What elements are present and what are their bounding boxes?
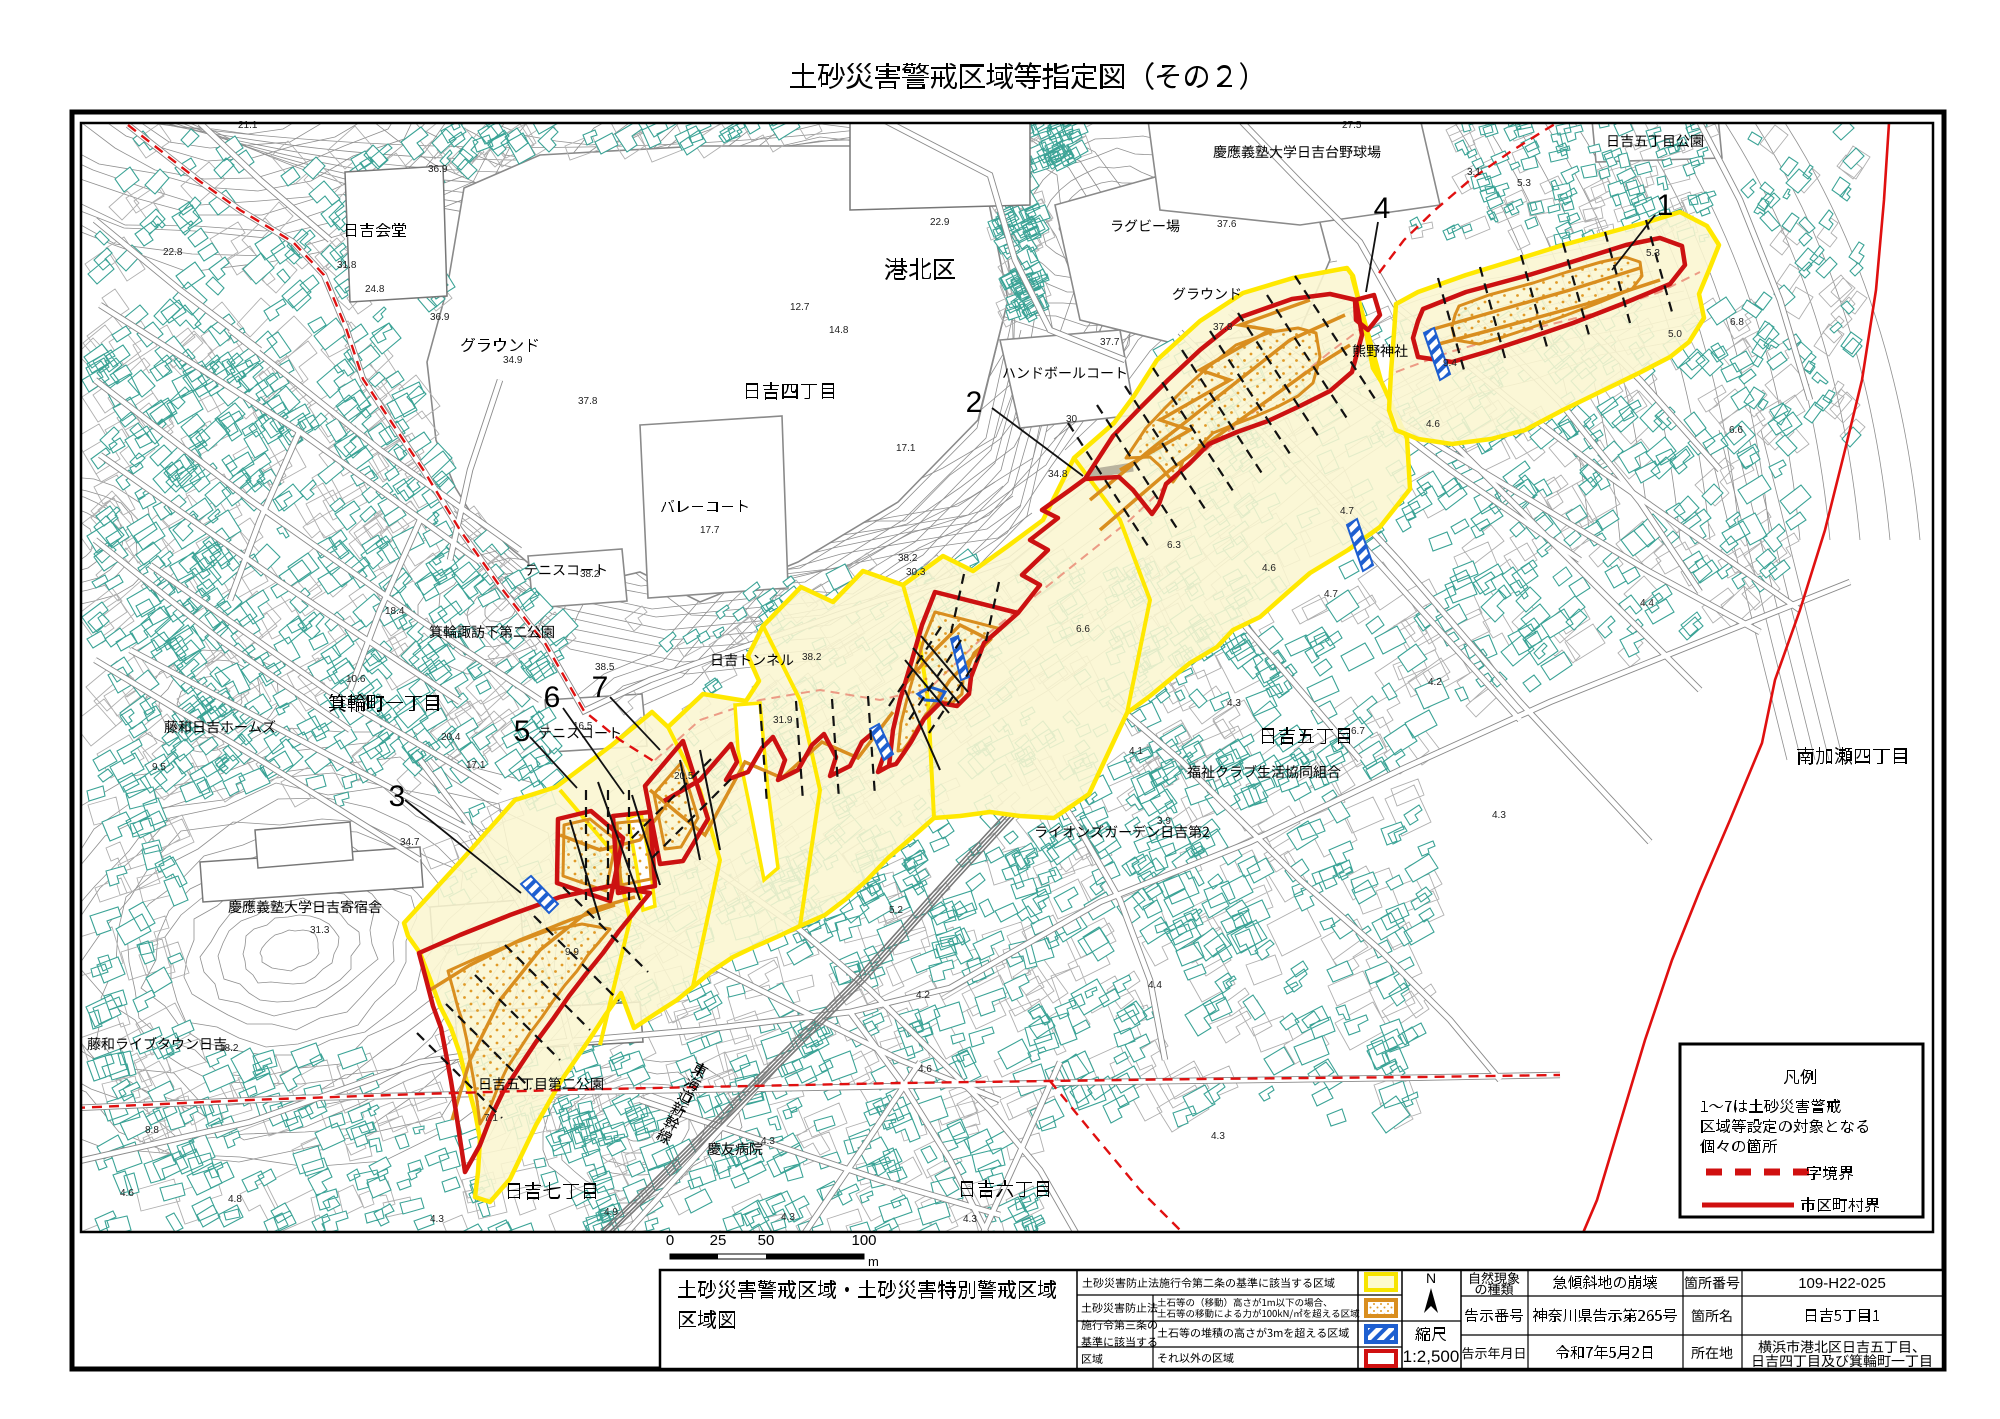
svg-text:36.9: 36.9 xyxy=(430,312,450,323)
svg-text:50: 50 xyxy=(758,1232,775,1249)
svg-text:3.9: 3.9 xyxy=(1157,816,1171,827)
svg-text:25: 25 xyxy=(710,1232,727,1249)
svg-text:4.2: 4.2 xyxy=(916,990,930,1001)
svg-text:4.6: 4.6 xyxy=(120,1188,134,1199)
svg-text:31.9: 31.9 xyxy=(773,715,793,726)
svg-text:4.7: 4.7 xyxy=(1340,506,1354,517)
svg-text:31.3: 31.3 xyxy=(310,925,330,936)
svg-text:14.8: 14.8 xyxy=(829,325,849,336)
svg-text:4.3: 4.3 xyxy=(430,1214,444,1225)
svg-text:30.3: 30.3 xyxy=(906,567,926,578)
svg-text:4.3: 4.3 xyxy=(963,1214,977,1225)
svg-text:6.6: 6.6 xyxy=(1076,624,1090,635)
svg-text:5.3: 5.3 xyxy=(1517,178,1531,189)
svg-text:0: 0 xyxy=(666,1232,674,1249)
svg-text:4.3: 4.3 xyxy=(1227,698,1241,709)
svg-text:4.4: 4.4 xyxy=(1148,980,1162,991)
svg-text:4.6: 4.6 xyxy=(1262,563,1276,574)
svg-text:31.8: 31.8 xyxy=(337,260,357,271)
svg-text:34.8: 34.8 xyxy=(1048,469,1068,480)
svg-text:4.6: 4.6 xyxy=(1426,419,1440,430)
svg-text:6.6: 6.6 xyxy=(1729,425,1743,436)
svg-text:37.8: 37.8 xyxy=(1213,322,1233,333)
svg-text:5.0: 5.0 xyxy=(1668,329,1682,340)
svg-text:6: 6 xyxy=(544,681,561,714)
svg-text:3: 3 xyxy=(389,780,406,813)
svg-text:m: m xyxy=(868,1254,879,1269)
svg-text:20.5: 20.5 xyxy=(674,771,694,782)
svg-text:N: N xyxy=(1426,1270,1436,1286)
svg-text:21.1: 21.1 xyxy=(238,120,258,131)
svg-text:2: 2 xyxy=(966,386,983,419)
svg-text:38.2: 38.2 xyxy=(802,652,822,663)
svg-text:24.8: 24.8 xyxy=(365,284,385,295)
svg-text:5.2: 5.2 xyxy=(889,905,903,916)
svg-text:4.3: 4.3 xyxy=(761,1136,775,1147)
svg-text:9.4: 9.4 xyxy=(1443,358,1457,369)
svg-text:4: 4 xyxy=(1374,192,1391,225)
svg-text:100: 100 xyxy=(851,1232,876,1249)
svg-text:22.9: 22.9 xyxy=(930,217,950,228)
svg-text:17.7: 17.7 xyxy=(700,525,720,536)
svg-text:36.9: 36.9 xyxy=(428,164,448,175)
svg-text:37.7: 37.7 xyxy=(1100,337,1120,348)
svg-text:7: 7 xyxy=(592,671,609,704)
svg-text:38.2: 38.2 xyxy=(580,569,600,580)
svg-text:18.2: 18.2 xyxy=(219,1043,239,1054)
svg-text:6.3: 6.3 xyxy=(1167,540,1181,551)
svg-text:4.6: 4.6 xyxy=(918,1064,932,1075)
svg-text:1: 1 xyxy=(1657,189,1674,222)
svg-text:7.1: 7.1 xyxy=(484,1113,498,1124)
svg-text:18.4: 18.4 xyxy=(385,606,405,617)
svg-text:22.8: 22.8 xyxy=(163,247,183,258)
svg-text:17.1: 17.1 xyxy=(466,760,486,771)
svg-text:4.7: 4.7 xyxy=(1324,589,1338,600)
svg-text:8.8: 8.8 xyxy=(145,1125,159,1136)
svg-text:5.3: 5.3 xyxy=(1646,248,1660,259)
svg-text:4.2: 4.2 xyxy=(1428,677,1442,688)
svg-text:1:2,500: 1:2,500 xyxy=(1403,1347,1460,1366)
svg-text:4.3: 4.3 xyxy=(1492,810,1506,821)
svg-text:37.6: 37.6 xyxy=(1217,219,1237,230)
svg-text:6.7: 6.7 xyxy=(1351,726,1365,737)
svg-text:4.8: 4.8 xyxy=(228,1194,242,1205)
svg-text:6.8: 6.8 xyxy=(1730,317,1744,328)
svg-text:5: 5 xyxy=(514,715,531,748)
svg-text:9.5: 9.5 xyxy=(152,762,166,773)
svg-text:4.1: 4.1 xyxy=(1129,746,1143,757)
svg-text:4.3: 4.3 xyxy=(1211,1131,1225,1142)
svg-text:30: 30 xyxy=(1066,414,1078,425)
svg-text:12.7: 12.7 xyxy=(790,302,810,313)
svg-text:4.4: 4.4 xyxy=(1640,598,1654,609)
svg-text:38.2: 38.2 xyxy=(898,553,918,564)
svg-text:4.3: 4.3 xyxy=(781,1212,795,1223)
svg-text:38.5: 38.5 xyxy=(595,662,615,673)
svg-text:4.9: 4.9 xyxy=(604,1207,618,1218)
svg-text:27.5: 27.5 xyxy=(1342,120,1362,131)
svg-text:34.7: 34.7 xyxy=(400,837,420,848)
svg-text:37.8: 37.8 xyxy=(578,396,598,407)
svg-text:34.9: 34.9 xyxy=(503,355,523,366)
svg-text:109-H22-025: 109-H22-025 xyxy=(1798,1275,1886,1292)
svg-text:3.1: 3.1 xyxy=(1467,167,1481,178)
svg-text:20.4: 20.4 xyxy=(441,732,461,743)
svg-text:17.1: 17.1 xyxy=(896,443,916,454)
svg-text:9.9: 9.9 xyxy=(565,947,579,958)
svg-text:10.6: 10.6 xyxy=(346,674,366,685)
